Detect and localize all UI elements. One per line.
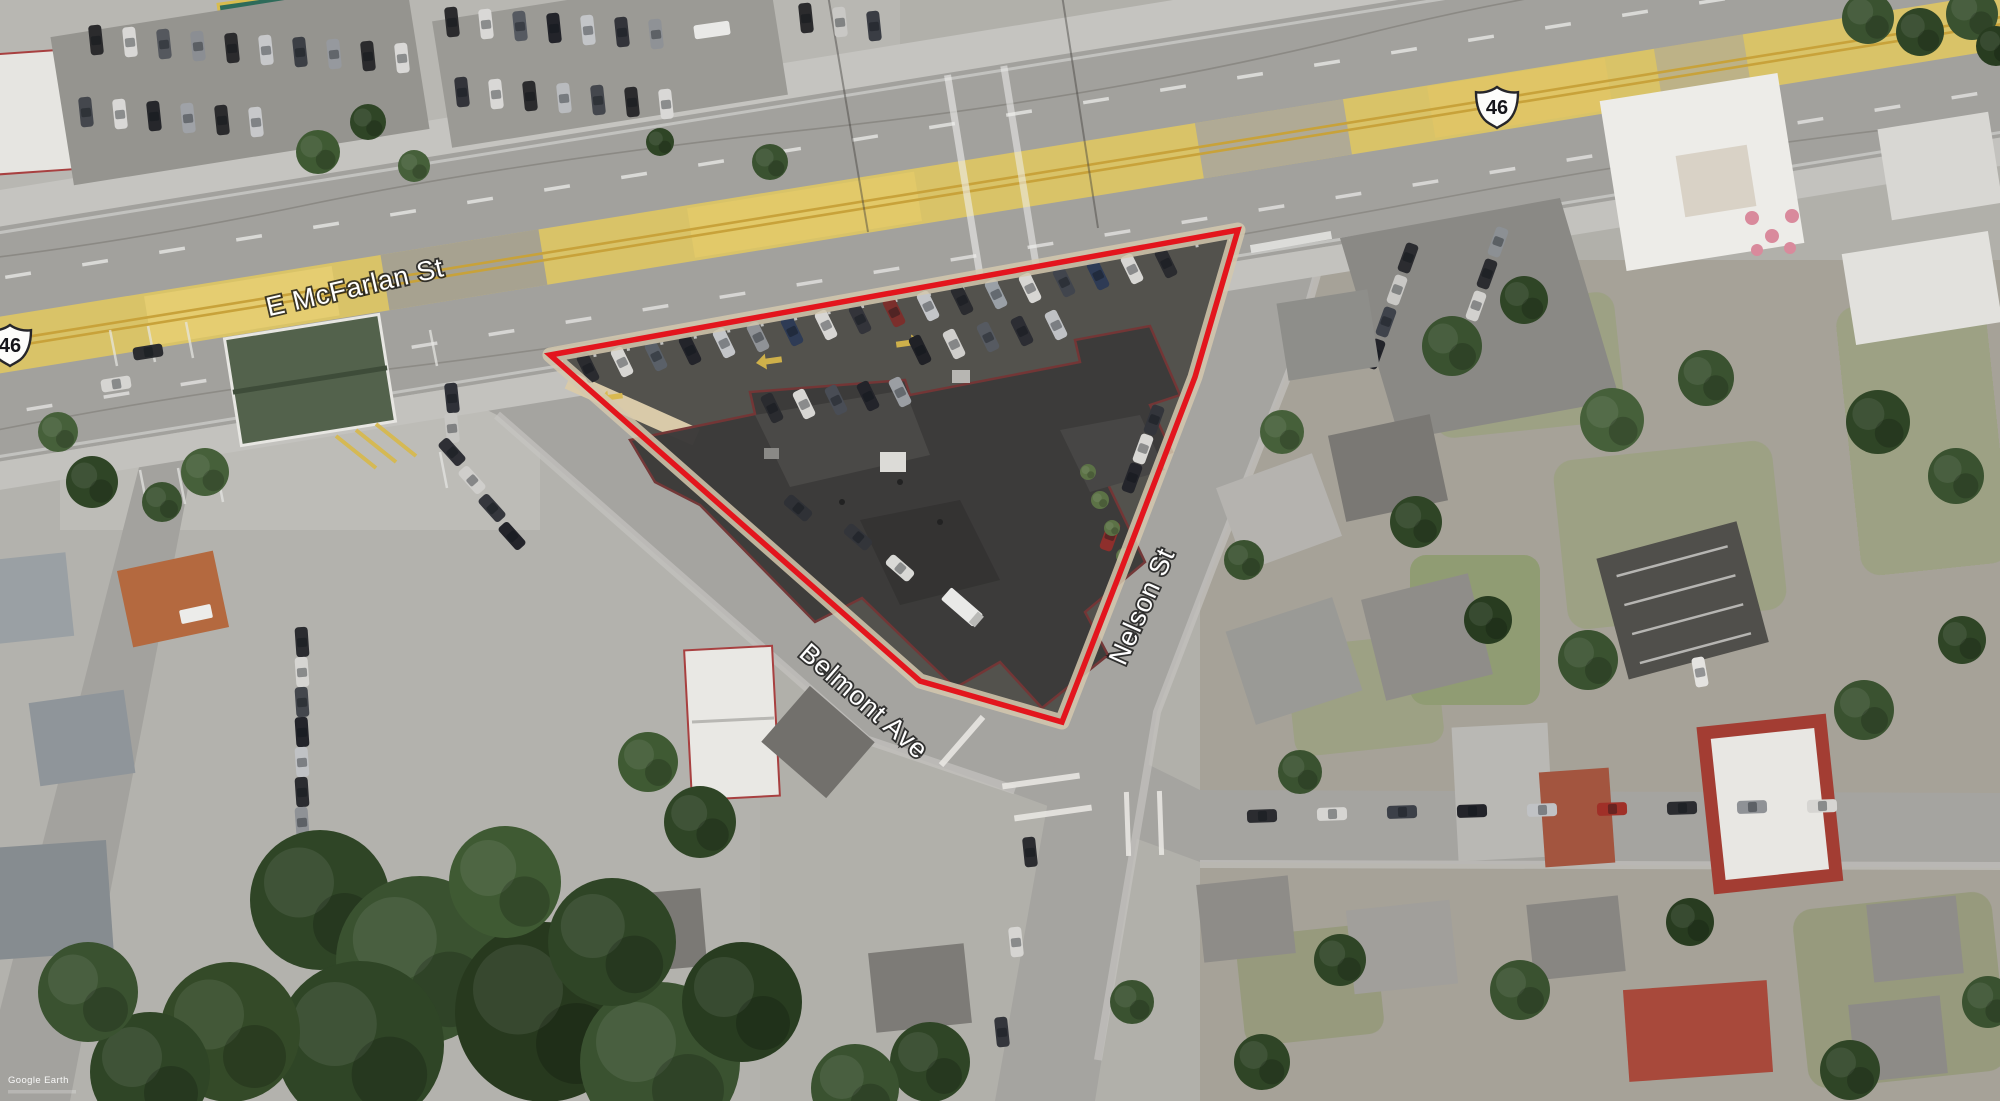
aerial-scene: E McFarlan St Belmont Ave Nelson St 46 4…: [0, 0, 2000, 1101]
attribution-bar: [8, 1090, 76, 1094]
svg-text:46: 46: [0, 335, 21, 357]
map-canvas[interactable]: E McFarlan St Belmont Ave Nelson St 46 4…: [0, 0, 2000, 1101]
restaurant-building: [225, 314, 396, 445]
watermark-brand: Google Earth: [8, 1075, 69, 1086]
svg-text:46: 46: [1486, 97, 1508, 119]
watermark: Google Earth: [8, 1075, 76, 1094]
